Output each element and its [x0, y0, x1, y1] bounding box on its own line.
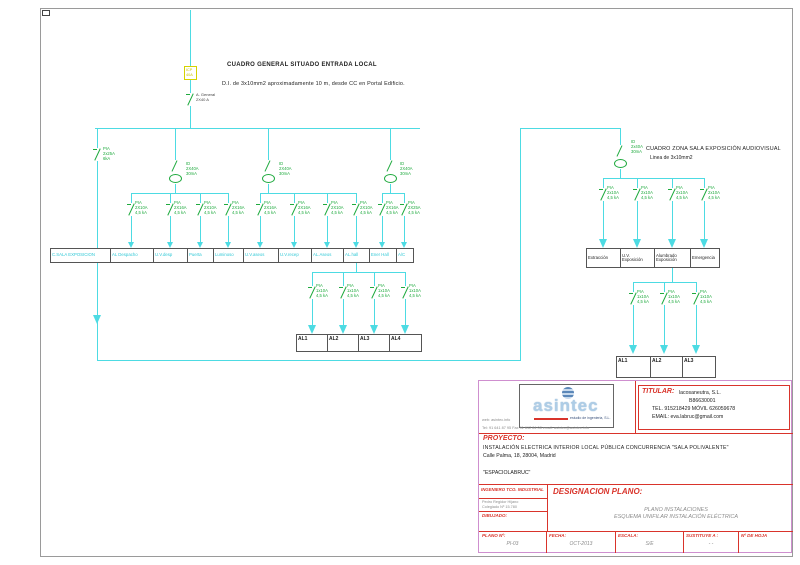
hoja-label: Nº DE HOJA	[741, 533, 767, 538]
bus-cell: Emergencia	[691, 249, 719, 267]
designacion-label: DESIGNACION PLANO:	[553, 487, 642, 496]
al-box-row: AL1 AL2 AL3	[616, 356, 716, 378]
feed-arrow-icon	[660, 345, 668, 354]
bus-cell: A/C	[397, 249, 413, 262]
wire	[603, 178, 705, 179]
breaker-label: PIA 1x10A 4,5 kA	[700, 289, 712, 304]
wire	[95, 128, 420, 129]
divider	[479, 531, 793, 532]
breaker-label: PIA 1x10A 4,5 kA	[637, 289, 649, 304]
feed-arrow-icon	[629, 345, 637, 354]
feed-arrow-icon	[700, 239, 708, 248]
wire	[633, 282, 697, 283]
bus-cell: C.SALA EXPOSICION	[51, 249, 111, 262]
dibujado-label: DIBUJADO:	[482, 513, 507, 518]
breaker-label: PIA 2x25A 6kA	[103, 146, 115, 161]
bus-cell: Luminoso	[214, 249, 244, 262]
corner-registration-mark	[42, 10, 50, 16]
al-box: AL3	[359, 335, 390, 351]
bus-cell: Alumbrado Exposición	[655, 249, 691, 267]
wire	[260, 193, 357, 194]
breaker-label: PIA 2X16A 4,5 kA	[264, 200, 277, 215]
al-box: AL2	[328, 335, 359, 351]
wire	[200, 193, 201, 242]
plano-label: PLANO Nº:	[482, 533, 505, 538]
al-box: AL3	[683, 357, 715, 377]
breaker-label: PIA 2X16A 4,5 kA	[174, 200, 187, 215]
al-box: AL2	[651, 357, 683, 377]
divider	[479, 484, 793, 485]
wire	[404, 193, 405, 242]
bus-cell: AL.Aseos	[312, 249, 344, 262]
logo-web: web: asintec.info	[482, 418, 510, 423]
breaker-label: PIA 2X10A 4,5 kA	[135, 200, 148, 215]
titular-phone: TEL. 915218429 MÓVIL 626059678	[652, 406, 735, 412]
bus-cell: AL Despacho	[111, 249, 154, 262]
al-box: AL1	[297, 335, 328, 351]
divider	[479, 511, 547, 512]
engineer-number: Colegiado Nº 15.780	[482, 505, 517, 510]
bus-cell: U.V. Exposición	[621, 249, 655, 267]
icp-device: ICP 40A	[184, 66, 197, 80]
titular-name: lacosaneutra, S.L.	[679, 390, 721, 396]
wire	[170, 193, 171, 242]
bus-cell: Extracción	[587, 249, 621, 267]
breaker-label: PIA 2X10A 4,5 kA	[360, 200, 373, 215]
wire	[260, 193, 261, 242]
bus-cell: U.V.desp	[154, 249, 188, 262]
divider	[479, 433, 793, 434]
rcd-label: ID 2X40A 30mA	[186, 161, 199, 176]
wire	[382, 193, 383, 242]
wire	[97, 263, 98, 360]
logo-tagline: estudio de ingenieria, S.L.	[570, 416, 610, 420]
titular-label: TITULAR:	[642, 388, 674, 395]
fecha-value: OCT-2013	[547, 541, 615, 547]
proyecto-line3: "ESPACIOLABRUC"	[483, 470, 530, 476]
proyecto-line2: Calle Palma, 18, 28004, Madrid	[483, 453, 556, 459]
rcd-icon	[613, 145, 628, 169]
breaker-label: PIA 2X16A 4,5 kA	[298, 200, 311, 215]
rcd-icon	[168, 160, 183, 184]
proyecto-label: PROYECTO:	[483, 435, 525, 442]
breaker-icon	[93, 148, 102, 161]
wire	[97, 128, 98, 248]
fecha-label: FECHA:	[549, 533, 566, 538]
breaker-label: PIA 2x10A 4,5 kA	[641, 185, 653, 200]
zone-board-title: CUADRO ZONA SALA EXPOSICIÓN AUDIOVISUAL	[646, 146, 781, 153]
plano-value: PI-03	[479, 541, 546, 547]
wire	[382, 193, 405, 194]
logo-wordmark: asintec	[533, 396, 599, 416]
rcd-label: ID 2x40A 30mA	[631, 139, 643, 154]
bus-cell: Puerta	[188, 249, 214, 262]
designacion-line2: ESQUEMA UNIFILAR INSTALACIÓN ELÉCTRICA	[561, 514, 791, 520]
rcd-label: ID 2X40A 30mA	[279, 161, 292, 176]
breaker-label: PIA 1x10A 4,5 kA	[316, 283, 328, 298]
al-box: AL1	[617, 357, 651, 377]
titular-cif: B86630001	[689, 398, 716, 404]
breaker-label: PIA 1x10A 4,5 kA	[409, 283, 421, 298]
breaker-label: PIA 2X16A 4,5 kA	[386, 200, 399, 215]
feed-arrow-icon	[633, 239, 641, 248]
wire	[327, 193, 328, 242]
titular-box: TITULAR: lacosaneutra, S.L. B86630001 TE…	[638, 385, 790, 430]
breaker-label: PIA 2X10A 4,5 kA	[331, 200, 344, 215]
general-board-title: CUADRO GENERAL SITUADO ENTRADA LOCAL	[227, 62, 377, 70]
feed-arrow-icon	[692, 345, 700, 354]
wire	[97, 360, 521, 361]
designacion-line1: PLANO INSTALACIONES	[561, 507, 791, 513]
wire	[294, 193, 295, 242]
general-busbar: C.SALA EXPOSICION AL Despacho U.V.desp P…	[50, 248, 414, 263]
feed-arrow-icon	[339, 325, 347, 334]
bus-cell: U.V.recep	[279, 249, 312, 262]
feed-arrow-icon	[308, 325, 316, 334]
zone-board-subtitle: Linea de 3x10mm2	[650, 155, 693, 161]
escala-label: ESCALA:	[618, 533, 638, 538]
wire	[520, 128, 620, 129]
divider	[635, 381, 636, 433]
logo-box: asintec estudio de ingenieria, S.L.	[519, 384, 614, 428]
rcd-icon	[261, 160, 276, 184]
breaker-label: PIA 2x10A 4,5 kA	[607, 185, 619, 200]
engineer-header: INGENIERO TCO. INDUSTRIAL	[481, 487, 544, 492]
titular-email: EMAIL: eva.labruc@gmail.com	[652, 414, 723, 420]
breaker-label: PIA 2X10A 4,5 kA	[204, 200, 217, 215]
sustituye-value: - -	[684, 541, 738, 547]
breaker-label: PIA 1x10A 4,5 kA	[668, 289, 680, 304]
wire	[228, 193, 229, 242]
zone-busbar: Extracción U.V. Exposición Alumbrado Exp…	[586, 248, 720, 268]
breaker-label: PIA 2x10A 4,5 kA	[676, 185, 688, 200]
general-board-subtitle: D.I. de 3x10mm2 aproximadamente 10 m, de…	[222, 81, 405, 88]
main-switch-icon	[186, 93, 195, 106]
feed-arrow-icon	[93, 315, 101, 324]
breaker-label: PIA 2X16A 4,5 kA	[232, 200, 245, 215]
feed-arrow-icon	[599, 239, 607, 248]
divider	[479, 498, 547, 499]
sustituye-label: SUSTITUYE A :	[686, 533, 718, 538]
wire	[520, 128, 521, 361]
feed-arrow-icon	[668, 239, 676, 248]
bus-cell: U.V.aseos	[244, 249, 279, 262]
title-block: asintec estudio de ingenieria, S.L. web:…	[478, 380, 792, 553]
rcd-label: ID 2X40A 30mA	[400, 161, 413, 176]
breaker-label: PIA 1x10A 4,5 kA	[378, 283, 390, 298]
drawing-sheet: CUADRO GENERAL SITUADO ENTRADA LOCAL D.I…	[0, 0, 800, 565]
proyecto-line1: INSTALACIÓN ELECTRICA INTERIOR LOCAL PÚB…	[483, 445, 729, 451]
bus-cell: Ener Hall	[370, 249, 397, 262]
bus-cell: AL.hall	[344, 249, 370, 262]
wire	[356, 193, 357, 242]
wire	[672, 268, 673, 283]
wire	[131, 193, 229, 194]
breaker-label: PIA 1x10A 4,5 kA	[347, 283, 359, 298]
feed-arrow-icon	[401, 325, 409, 334]
breaker-label: PIA 2X25A 4,5 kA	[408, 200, 421, 215]
al-box-row: AL1 AL2 AL3 AL4	[296, 334, 422, 352]
wire	[312, 272, 406, 273]
wire	[620, 128, 621, 146]
feed-arrow-icon	[370, 325, 378, 334]
wire	[620, 169, 621, 178]
escala-value: S/E	[616, 541, 683, 547]
breaker-label: PIA 2x10A 4,5 kA	[708, 185, 720, 200]
divider	[547, 484, 548, 531]
al-box: AL4	[390, 335, 421, 351]
wire	[131, 193, 132, 242]
divider	[738, 531, 739, 553]
logo-accent-bar	[534, 418, 568, 420]
logo-contact: Tel: 91 641 87 95 Fax 91 612 84 08 email…	[482, 426, 589, 431]
rcd-icon	[383, 160, 398, 184]
main-switch-label: A. General 2X40 A	[196, 92, 215, 102]
